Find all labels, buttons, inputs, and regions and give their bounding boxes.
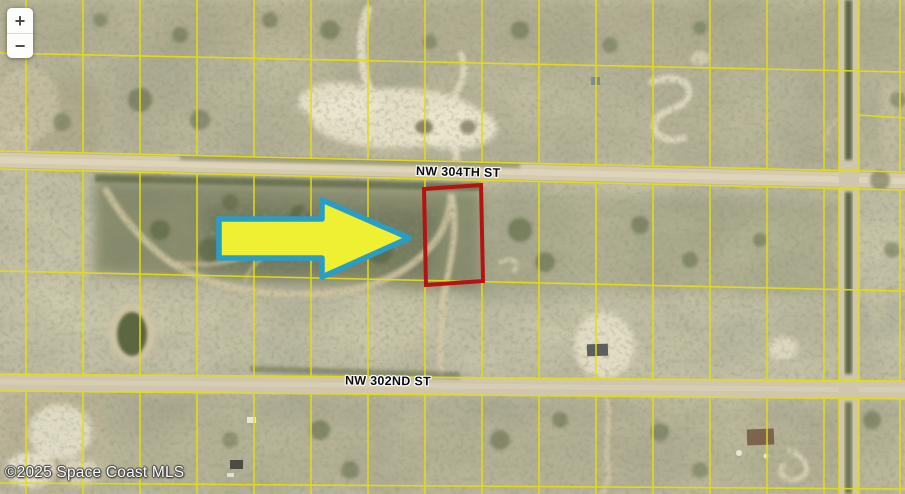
minus-icon: − [15, 36, 26, 56]
plus-icon: + [15, 11, 26, 31]
map-canvas[interactable]: + − NW 304TH ST NW 302ND ST ©2025 Space … [0, 0, 905, 494]
satellite-imagery [0, 0, 905, 494]
pond [109, 305, 155, 363]
zoom-control: + − [7, 8, 33, 58]
zoom-in-button[interactable]: + [7, 8, 33, 33]
zoom-out-button[interactable]: − [7, 33, 33, 58]
